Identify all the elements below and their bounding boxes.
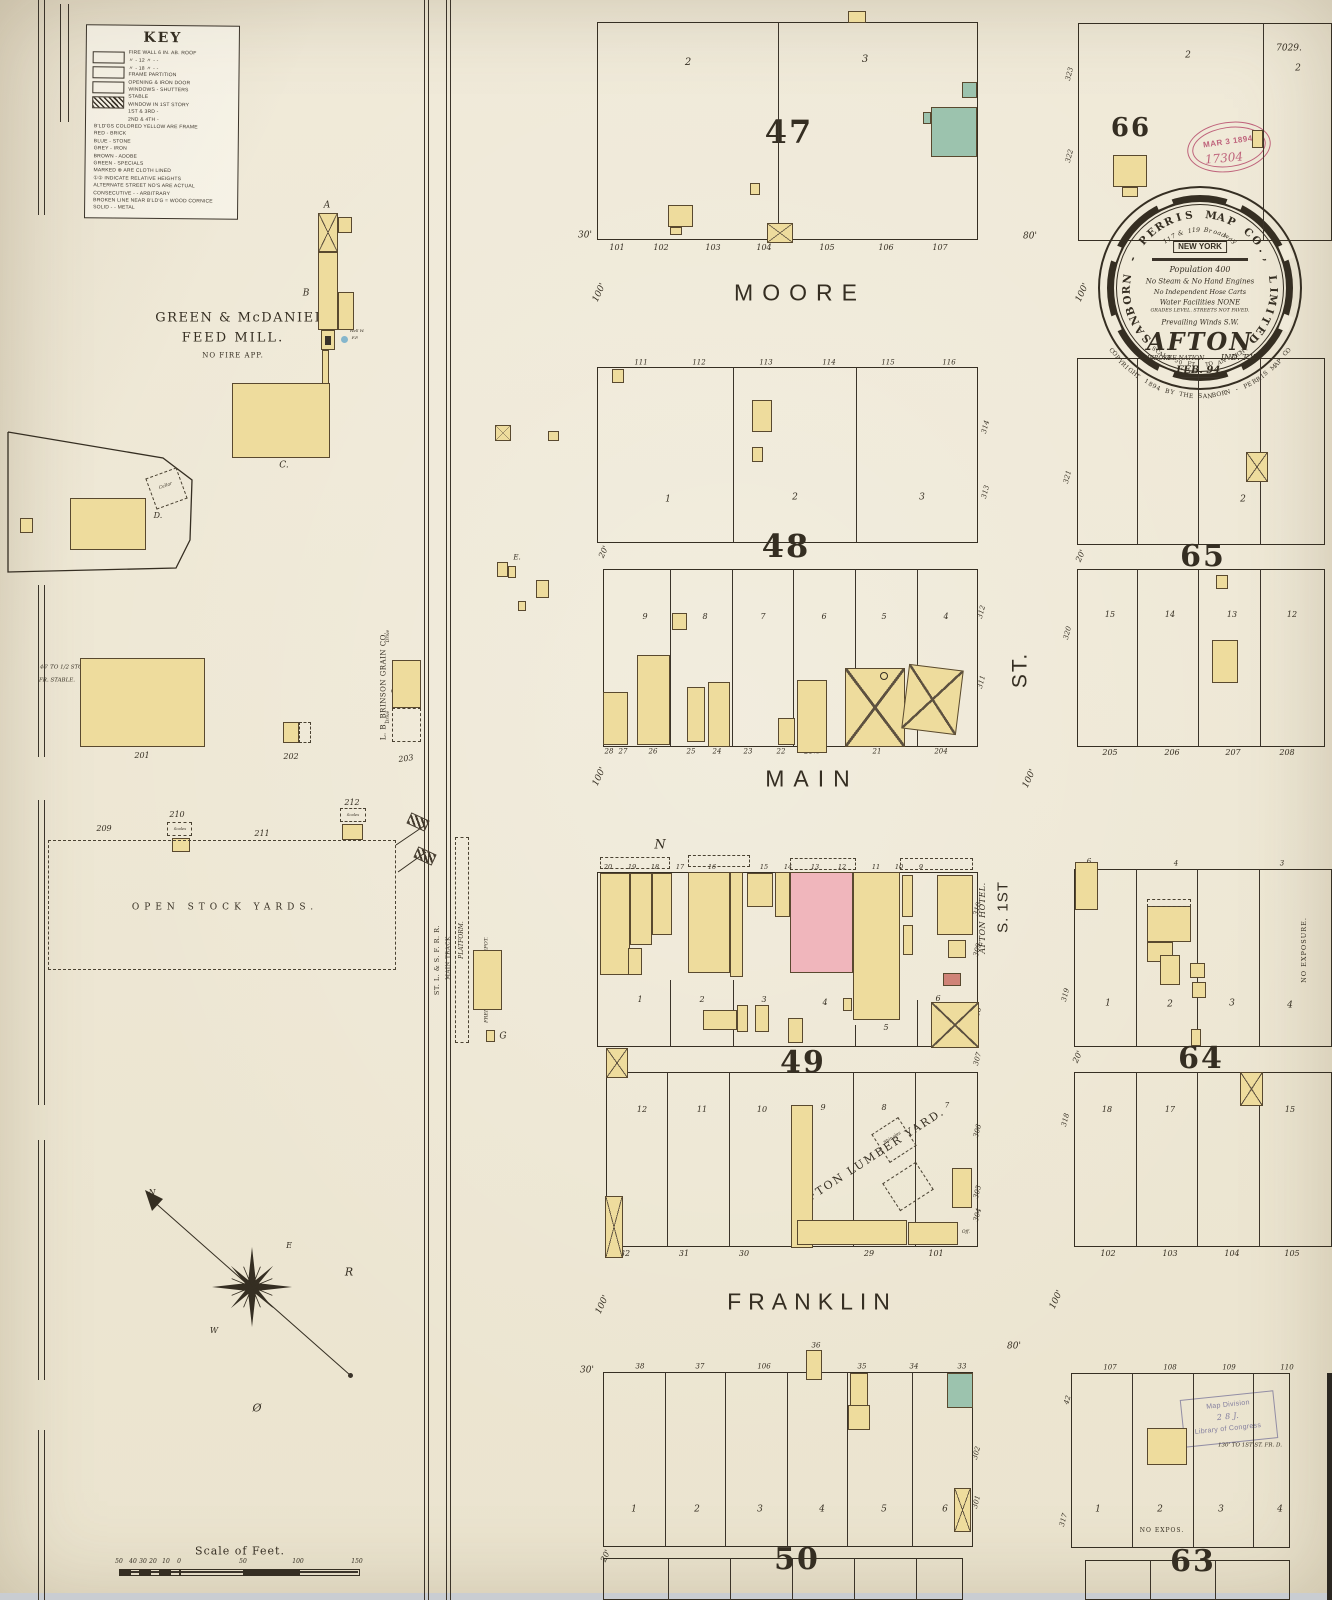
building xyxy=(1122,187,1138,197)
street-line xyxy=(1181,377,1219,378)
building xyxy=(703,1010,737,1030)
building xyxy=(1075,862,1098,910)
map-label: 21 xyxy=(873,749,882,756)
building xyxy=(730,872,743,977)
street-line xyxy=(733,367,734,543)
map-label: 106 xyxy=(878,244,893,252)
building xyxy=(630,873,652,945)
key-row: GREEN - SPECIALS xyxy=(94,160,144,167)
map-label: Drive xyxy=(387,711,392,723)
building xyxy=(901,664,964,735)
map-label: W xyxy=(210,1327,218,1335)
dashed-outline xyxy=(688,855,750,867)
street-line xyxy=(1215,1560,1216,1600)
map-label: 106 xyxy=(757,1364,770,1371)
building xyxy=(1216,575,1228,589)
key-row: 1ST & 3RD - xyxy=(128,109,159,115)
map-label: 107 xyxy=(932,244,947,252)
key-row: OPENING & IRON DOOR xyxy=(128,79,190,86)
street-line xyxy=(428,0,429,1600)
street-line xyxy=(1152,258,1248,261)
dashed-outline xyxy=(340,808,366,822)
street-line xyxy=(38,585,39,757)
map-label: 65 xyxy=(1180,542,1226,572)
building xyxy=(688,872,730,973)
building xyxy=(902,875,913,917)
stamp-arc-char: N xyxy=(1122,274,1134,285)
map-label: D. xyxy=(154,512,163,520)
street-line xyxy=(1193,1373,1194,1548)
stamp-line: NEW YORK xyxy=(1173,241,1227,253)
sanborn-map-sheet: KEY FIRE WALL 6 IN. AB. ROOF〃 - 12 〃 - -… xyxy=(0,0,1332,1600)
building xyxy=(788,1018,803,1043)
map-label: 205 xyxy=(1102,749,1117,757)
building xyxy=(806,1350,822,1380)
building xyxy=(903,925,913,955)
street-line xyxy=(1198,358,1199,545)
building xyxy=(848,1405,870,1430)
building xyxy=(947,1373,973,1408)
map-label: ST. L. & S. F. R. R. xyxy=(434,925,441,995)
key-row: CONSECUTIVE - - ARBITRARY xyxy=(93,190,170,197)
building xyxy=(908,1222,958,1245)
building xyxy=(1160,955,1180,985)
building xyxy=(318,213,338,252)
scale-seg xyxy=(243,1569,300,1576)
building xyxy=(473,950,502,1010)
building xyxy=(70,498,146,550)
scale-seg xyxy=(179,1569,245,1576)
block-outline xyxy=(1077,358,1325,545)
street-line xyxy=(847,1372,848,1547)
building xyxy=(848,11,866,23)
map-label: 103 xyxy=(705,244,720,252)
street-line xyxy=(670,980,671,1047)
street-line xyxy=(1260,569,1261,747)
street-line xyxy=(38,800,39,1105)
street-line xyxy=(1136,1072,1137,1247)
street-line xyxy=(1137,358,1138,545)
well-circle xyxy=(880,672,888,680)
street-line xyxy=(424,0,425,1600)
building xyxy=(853,872,900,1020)
map-label: 80' xyxy=(1023,233,1037,242)
building xyxy=(797,680,827,753)
street-line xyxy=(1263,23,1264,241)
street-line xyxy=(68,4,69,122)
map-label: GREEN & McDANIEL xyxy=(155,312,324,325)
map-label: L. B. BRINSON GRAIN CO. xyxy=(381,632,388,740)
map-label: 31 xyxy=(679,1250,689,1258)
map-label: 30' xyxy=(580,1367,594,1376)
block-outline xyxy=(1078,23,1332,241)
map-label: 116 xyxy=(942,360,955,367)
map-label: 30' xyxy=(578,232,592,241)
key-row: 〃 - 18 〃 - - xyxy=(129,64,159,71)
map-label: 15 xyxy=(760,864,768,871)
building xyxy=(1147,906,1191,942)
building xyxy=(937,875,973,935)
building xyxy=(536,580,549,598)
dashed-outline xyxy=(1147,899,1191,907)
key-row: BROKEN LINE NEAR B'LD'G = WOOD CORNICE xyxy=(93,197,213,204)
map-label: 36 xyxy=(812,1343,821,1350)
map-label: 210 xyxy=(169,811,184,819)
building xyxy=(1191,1029,1201,1046)
map-label: 29 xyxy=(864,1250,874,1258)
map-label: 206 xyxy=(1164,749,1179,757)
map-label: G xyxy=(499,1033,506,1042)
building xyxy=(668,205,693,227)
street-line xyxy=(665,1372,666,1547)
building xyxy=(603,692,628,745)
dashed-outline xyxy=(790,858,856,870)
stamp-line: Population 400 xyxy=(1169,266,1230,274)
building xyxy=(605,1196,623,1258)
building xyxy=(672,613,687,630)
building xyxy=(600,873,630,975)
building xyxy=(508,566,516,578)
map-label: 64 xyxy=(1178,1044,1224,1074)
building xyxy=(322,350,329,385)
map-label: 115 xyxy=(881,360,894,367)
building xyxy=(797,1220,907,1245)
sheet-edge-shadow xyxy=(1327,1373,1332,1600)
street-line xyxy=(1197,869,1198,1047)
scale-tick: 10 xyxy=(162,1559,170,1565)
map-label: 112 xyxy=(692,360,705,367)
building xyxy=(687,687,705,742)
street-line xyxy=(1198,569,1199,747)
building xyxy=(752,400,772,432)
map-label: 208 xyxy=(1279,749,1294,757)
map-label: 201 xyxy=(134,752,149,760)
map-label: 25 xyxy=(687,749,696,756)
map-label: 101 xyxy=(928,1250,943,1258)
scale-tick: 50 xyxy=(115,1559,123,1565)
scale-title: Scale of Feet. xyxy=(195,1546,285,1557)
dashed-outline xyxy=(455,837,469,1043)
building xyxy=(747,873,773,907)
map-label: N xyxy=(149,1189,156,1197)
building xyxy=(755,1005,769,1032)
scale-seg xyxy=(298,1569,360,1576)
building xyxy=(750,183,760,195)
map-label: 212 xyxy=(344,799,359,807)
map-label: 102 xyxy=(653,244,668,252)
map-label: R xyxy=(345,1267,353,1278)
building xyxy=(637,655,670,745)
building xyxy=(318,252,338,330)
building xyxy=(548,431,559,441)
building xyxy=(962,82,977,98)
map-label: 37 xyxy=(696,1364,705,1371)
building xyxy=(737,1005,748,1032)
street-line xyxy=(1197,1072,1198,1247)
building xyxy=(752,447,763,462)
building xyxy=(283,722,299,743)
key-row: MARKED ⊗ ARE CLOTH LINED xyxy=(93,168,171,175)
map-label: 202 xyxy=(283,753,298,761)
key-row: B'LD'GS COLORED YELLOW ARE FRAME xyxy=(94,123,198,130)
building xyxy=(606,1048,628,1078)
map-label: 26 xyxy=(649,749,658,756)
building xyxy=(342,824,363,840)
street-line xyxy=(446,0,447,1600)
building xyxy=(612,369,624,383)
map-label: 34 xyxy=(910,1364,919,1371)
map-label: 103 xyxy=(1162,1250,1177,1258)
block-outline xyxy=(603,1558,963,1600)
map-label: 109 xyxy=(1222,1365,1235,1372)
map-label: F.P. xyxy=(352,336,359,340)
building xyxy=(843,998,852,1011)
key-row: ALTERNATE STREET NO'S ARE ACTUAL xyxy=(93,182,195,189)
stamp-line: No Independent Hose Carts xyxy=(1154,289,1246,296)
key-row: WINDOW IN 1ST STORY xyxy=(128,101,189,108)
building xyxy=(923,112,931,124)
building xyxy=(325,336,331,345)
stamp-arc-char: M xyxy=(1266,294,1278,307)
map-label: 24 xyxy=(713,749,722,756)
dashed-outline xyxy=(167,822,192,836)
building xyxy=(628,948,642,975)
map-label: 105 xyxy=(819,244,834,252)
building xyxy=(943,973,961,986)
building xyxy=(1190,963,1205,978)
building xyxy=(845,668,905,747)
well-circle xyxy=(341,336,348,343)
key-row: GREY - IRON xyxy=(94,145,127,151)
map-label: 107 xyxy=(1103,1365,1116,1372)
building xyxy=(1252,130,1263,148)
map-label: FEED MILL. xyxy=(182,332,284,345)
building xyxy=(497,562,508,577)
street-line xyxy=(732,569,733,747)
building xyxy=(948,940,966,958)
map-label: 46' TO 1/2 STO. xyxy=(40,665,84,671)
map-label: 105 xyxy=(1284,1250,1299,1258)
key-row: SOLID - - METAL xyxy=(93,205,135,211)
map-label: 207 xyxy=(1225,749,1240,757)
street-line xyxy=(730,1558,731,1600)
composition-roof-symbol xyxy=(92,66,124,78)
street-line xyxy=(667,1072,668,1247)
map-label: NO FIRE APP. xyxy=(202,353,264,360)
street-line xyxy=(450,0,451,1600)
map-label: 113 xyxy=(759,360,772,367)
map-label: 80' xyxy=(1007,1343,1021,1352)
scale-tick: 30 xyxy=(139,1559,147,1565)
street-line xyxy=(787,1372,788,1547)
street-line xyxy=(44,1140,45,1380)
street-line xyxy=(38,1430,39,1600)
map-label: 211 xyxy=(254,830,269,838)
shingle-roof-symbol xyxy=(93,51,125,63)
street-line xyxy=(915,1072,916,1247)
dashed-outline xyxy=(600,857,670,869)
street-line xyxy=(856,367,857,543)
street-line xyxy=(916,1558,917,1600)
building xyxy=(790,872,853,973)
key-row: FRAME PARTITION xyxy=(128,72,176,79)
slate-tin-roof-symbol xyxy=(92,81,124,93)
stamp-line: Prevailing Winds S.W. xyxy=(1161,320,1238,327)
building xyxy=(931,1002,979,1048)
map-label: 28 xyxy=(605,749,614,756)
scale-tick: 0 xyxy=(177,1559,181,1565)
map-label: 114 xyxy=(822,360,835,367)
map-label: 23 xyxy=(744,749,753,756)
stamp-line: AFTON xyxy=(1147,330,1253,354)
street-line xyxy=(38,1140,39,1380)
building xyxy=(338,217,352,233)
building xyxy=(1147,1428,1187,1465)
street-line xyxy=(1136,869,1137,1047)
key-row: WINDOWS - SHUTTERS xyxy=(128,87,188,94)
map-label: 209 xyxy=(96,825,111,833)
street-line xyxy=(44,585,45,757)
key-row: 2ND & 4TH - xyxy=(128,116,159,122)
scale-tick: 40 xyxy=(129,1559,137,1565)
street-line xyxy=(1253,1373,1254,1548)
map-label: 11 xyxy=(872,864,880,871)
building xyxy=(232,383,330,458)
stamp-line: Water Facilities NONE xyxy=(1160,300,1241,307)
block-outline xyxy=(1077,569,1325,747)
dashed-outline xyxy=(48,840,396,970)
map-label: Ø xyxy=(252,1403,261,1414)
building xyxy=(80,658,205,747)
building xyxy=(392,660,421,708)
stamp-line: No Steam & No Hand Engines xyxy=(1146,279,1254,286)
building xyxy=(778,718,795,745)
map-label: 104 xyxy=(1224,1250,1239,1258)
building xyxy=(495,425,511,441)
block-outline xyxy=(597,367,978,543)
dashed-outline xyxy=(900,858,973,870)
building xyxy=(708,682,730,747)
scale-tick: 150 xyxy=(351,1559,362,1565)
street-line xyxy=(60,4,61,122)
map-label: 35 xyxy=(858,1364,867,1371)
key-legend: KEY FIRE WALL 6 IN. AB. ROOF〃 - 12 〃 - -… xyxy=(84,24,240,220)
scale-tick: 20 xyxy=(149,1559,157,1565)
building xyxy=(1246,452,1268,482)
key-row: BLUE - STONE xyxy=(94,138,131,144)
street-line xyxy=(855,1025,856,1047)
key-row: STABLE xyxy=(128,94,148,100)
building xyxy=(954,1488,971,1532)
map-label: 38 xyxy=(636,1364,645,1371)
stamp-line: GRADES LEVEL. STREETS NOT PAVED. xyxy=(1150,310,1249,315)
street-line xyxy=(1132,1373,1133,1548)
map-label: 204 xyxy=(934,749,947,756)
map-label: S. 1ST xyxy=(996,881,1011,933)
street-line xyxy=(792,1558,793,1600)
map-label: 33 xyxy=(958,1364,967,1371)
street-line xyxy=(44,800,45,1105)
street-line xyxy=(1137,569,1138,747)
building xyxy=(1240,1072,1263,1106)
map-label: MAIN xyxy=(765,768,859,791)
dashed-outline xyxy=(299,722,311,743)
stamp-arc-char: R xyxy=(1122,285,1133,294)
block-outline xyxy=(1074,1072,1332,1247)
street-line xyxy=(38,0,39,215)
building xyxy=(652,873,672,935)
street-line xyxy=(670,569,671,747)
street-line xyxy=(1150,1560,1151,1600)
building xyxy=(486,1030,495,1042)
building xyxy=(20,518,33,533)
street-line xyxy=(778,22,779,240)
block-outline xyxy=(1074,869,1332,1047)
street-line xyxy=(1259,869,1260,1047)
building xyxy=(518,601,526,611)
street-line xyxy=(44,0,45,215)
street-line xyxy=(729,1072,730,1247)
key-row: ①② INDICATE RELATIVE HEIGHTS xyxy=(93,175,181,182)
map-label: MOORE xyxy=(734,282,866,305)
map-label: B xyxy=(303,290,310,299)
map-label: 27 xyxy=(619,749,628,756)
building xyxy=(1192,982,1206,998)
map-label: FRANKLIN xyxy=(727,1291,897,1314)
map-label: E. xyxy=(513,555,520,562)
street-line xyxy=(668,1558,669,1600)
map-label: 110 xyxy=(1280,1365,1293,1372)
block-outline xyxy=(1085,1560,1290,1600)
map-label: A xyxy=(324,202,331,211)
street-line xyxy=(854,1558,855,1600)
map-label: N xyxy=(654,839,665,852)
block-outline xyxy=(597,22,978,240)
building xyxy=(775,872,790,917)
building xyxy=(931,107,977,157)
map-label: 111 xyxy=(634,360,647,367)
street-line xyxy=(917,1000,918,1047)
key-row: 〃 - 12 〃 - - xyxy=(129,57,159,64)
stamp-arc-char: I xyxy=(1268,287,1279,292)
map-label: C. xyxy=(279,462,288,471)
map-label: 30 xyxy=(739,1250,749,1258)
building xyxy=(767,223,793,243)
map-label: 102 xyxy=(1100,1250,1115,1258)
map-label: Drive xyxy=(387,630,392,642)
map-label: 4 xyxy=(1174,861,1178,868)
building xyxy=(1113,155,1147,187)
building xyxy=(338,292,354,330)
steam-boiler-symbol xyxy=(92,96,124,108)
map-label: 101 xyxy=(609,244,624,252)
map-label: 104 xyxy=(756,244,771,252)
building xyxy=(1212,640,1238,683)
well-circle xyxy=(348,1373,353,1378)
street-line xyxy=(912,1372,913,1547)
street-line xyxy=(44,1430,45,1600)
map-label: E xyxy=(286,1242,292,1250)
key-row: FIRE WALL 6 IN. AB. ROOF xyxy=(129,50,197,57)
building xyxy=(952,1168,972,1208)
street-line xyxy=(725,1372,726,1547)
dashed-outline xyxy=(392,708,421,742)
map-label: 108 xyxy=(1163,1365,1176,1372)
key-title: KEY xyxy=(87,29,239,47)
building xyxy=(670,227,682,235)
scale-tick: 100 xyxy=(292,1559,303,1565)
map-label: ST. xyxy=(1010,652,1031,688)
